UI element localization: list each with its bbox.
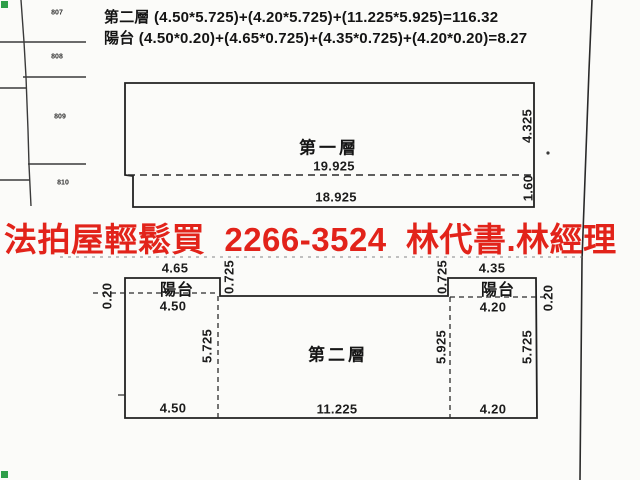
floor1-depth-right: 4.325 [520, 109, 535, 143]
parcel-number: 808 [51, 54, 63, 61]
floor1-width-bottom: 18.925 [315, 190, 357, 205]
watermark-ad-text: 法拍屋輕鬆買 2266-3524 林代書.林經理 [4, 213, 617, 261]
balcony-right-depth-side: 0.725 [435, 260, 450, 294]
parcel-number: 807 [51, 10, 63, 17]
balcony-right-width-bottom: 4.20 [480, 300, 507, 315]
floor2-depth-mid: 5.925 [434, 330, 449, 364]
corner-mark-bottom [1, 471, 8, 478]
floor2-width-bottom-left: 4.50 [160, 401, 187, 416]
balcony-left-label: 陽台 [160, 276, 194, 300]
balcony-right-label: 陽台 [481, 276, 515, 300]
balcony-left-depth-side: 0.725 [222, 260, 237, 294]
balcony-right-width-top: 4.35 [479, 261, 506, 276]
balcony-left-width-bottom: 4.50 [160, 299, 187, 314]
formula-second-floor: 第二層 (4.50*5.725)+(4.20*5.725)+(11.225*5.… [104, 6, 498, 27]
floor1-depth-bottom-right: 1.60 [521, 175, 536, 202]
floor1-width-top: 19.925 [313, 159, 355, 174]
cadastral-boundary-lines [0, 0, 86, 206]
stray-dot [546, 151, 549, 154]
parcel-number: 810 [57, 180, 69, 187]
floor1-name: 第一層 [299, 134, 359, 159]
floor2-name: 第二層 [308, 341, 368, 366]
corner-mark-top [1, 1, 8, 8]
floor2-depth-right: 5.725 [520, 330, 535, 364]
balcony-right-depth-end: 0.20 [541, 285, 556, 312]
floor2-width-bottom-mid: 11.225 [317, 402, 358, 417]
scanned-floor-plan-page: 第二層 (4.50*5.725)+(4.20*5.725)+(11.225*5.… [0, 0, 640, 480]
floor2-width-bottom-right: 4.20 [480, 402, 507, 417]
balcony-left-width-top: 4.65 [162, 261, 189, 276]
formula-balcony: 陽台 (4.50*0.20)+(4.65*0.725)+(4.35*0.725)… [104, 27, 527, 48]
floor2-depth-left: 5.725 [200, 329, 215, 363]
parcel-number: 809 [54, 114, 66, 121]
balcony-left-depth-end: 0.20 [100, 283, 115, 310]
